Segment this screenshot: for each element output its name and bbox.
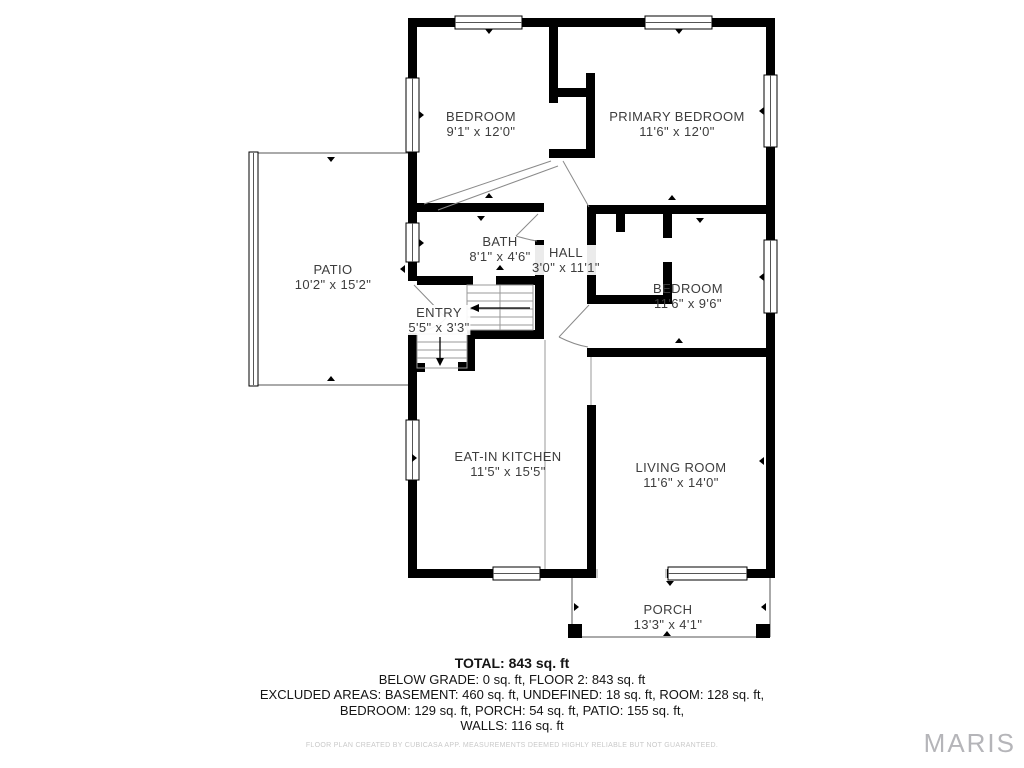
summary-line: BELOW GRADE: 0 sq. ft, FLOOR 2: 843 sq. … <box>0 672 1024 688</box>
wall-midpoint-marker <box>761 603 766 611</box>
room-label-patio: PATIO10'2" x 15'2" <box>295 262 372 292</box>
floor-plan-page: BEDROOM9'1" x 12'0" PRIMARY BEDROOM11'6"… <box>0 0 1024 768</box>
wall-midpoint-marker <box>327 376 335 381</box>
wall-midpoint-marker <box>477 216 485 221</box>
wall-midpoint-marker <box>485 193 493 198</box>
maris-watermark: MARIS <box>924 728 1016 759</box>
cubicasa-disclaimer: FLOOR PLAN CREATED BY CUBICASA APP. MEAS… <box>0 742 1024 749</box>
area-summary: TOTAL: 843 sq. ft BELOW GRADE: 0 sq. ft,… <box>0 656 1024 734</box>
room-label-living-room: LIVING ROOM11'6" x 14'0" <box>635 460 726 490</box>
room-label-bath: BATH8'1" x 4'6" <box>469 234 530 264</box>
room-label-hall: HALL3'0" x 11'1" <box>531 245 601 275</box>
wall-midpoint-marker <box>485 29 493 34</box>
summary-line: WALLS: 116 sq. ft <box>0 718 1024 734</box>
room-label-primary-bedroom: PRIMARY BEDROOM11'6" x 12'0" <box>609 109 745 139</box>
room-label-bedroom1: BEDROOM9'1" x 12'0" <box>446 109 516 139</box>
wall-midpoint-marker <box>668 195 676 200</box>
wall-midpoint-marker <box>666 581 674 586</box>
summary-line: EXCLUDED AREAS: BASEMENT: 460 sq. ft, UN… <box>0 687 1024 703</box>
wall-midpoint-marker <box>327 157 335 162</box>
wall-midpoint-marker <box>574 603 579 611</box>
wall-midpoint-marker <box>675 29 683 34</box>
room-label-porch: PORCH13'3" x 4'1" <box>634 602 703 632</box>
wall-midpoint-marker <box>759 107 764 115</box>
wall-midpoint-marker <box>419 111 424 119</box>
wall-midpoint-marker <box>675 338 683 343</box>
wall-midpoint-marker <box>419 239 424 247</box>
wall-midpoint-marker <box>696 218 704 223</box>
summary-total: TOTAL: 843 sq. ft <box>0 656 1024 672</box>
room-label-kitchen: EAT-IN KITCHEN11'5" x 15'5" <box>454 449 561 479</box>
summary-line: BEDROOM: 129 sq. ft, PORCH: 54 sq. ft, P… <box>0 703 1024 719</box>
door-swings <box>414 161 591 569</box>
wall-midpoint-marker <box>496 265 504 270</box>
room-label-bedroom2: BEDROOM11'6" x 9'6" <box>653 281 723 311</box>
wall-midpoint-marker <box>400 265 405 273</box>
wall-midpoint-marker <box>759 457 764 465</box>
room-label-entry: ENTRY5'5" x 3'3" <box>407 305 470 335</box>
wall-midpoint-marker <box>759 273 764 281</box>
